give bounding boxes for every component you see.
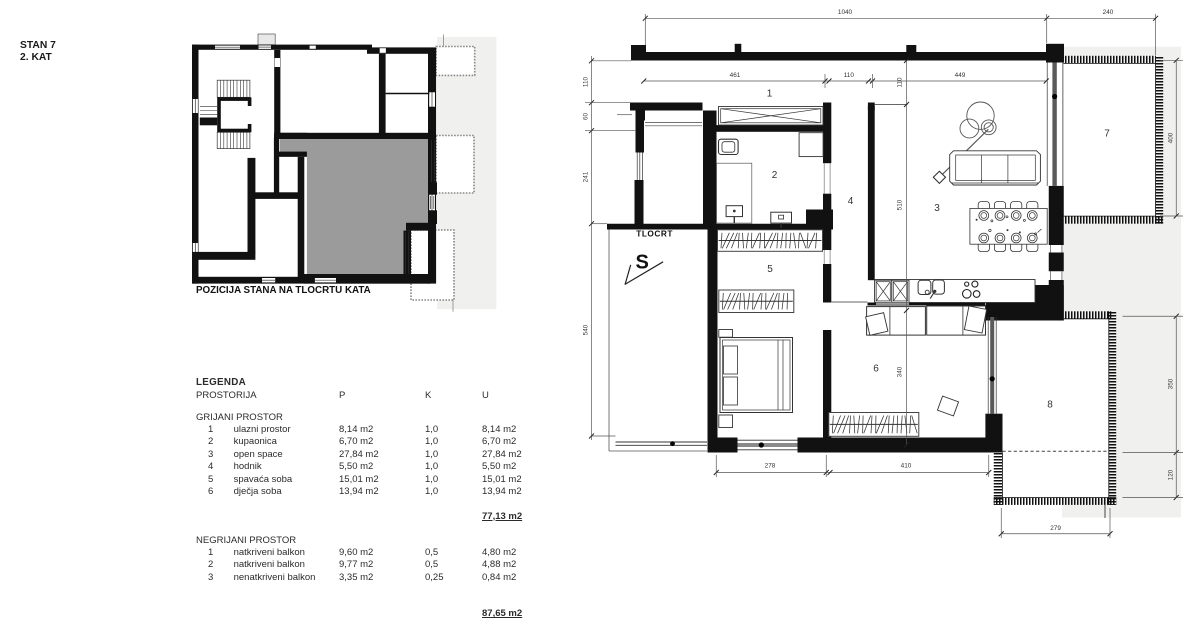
svg-text:241: 241 (583, 171, 590, 182)
svg-text:S: S (636, 252, 649, 274)
svg-text:8: 8 (1047, 400, 1053, 411)
svg-text:449: 449 (955, 72, 966, 79)
svg-text:6: 6 (873, 364, 879, 375)
svg-text:279: 279 (1050, 525, 1061, 532)
svg-text:7: 7 (1104, 129, 1110, 140)
svg-text:278: 278 (765, 463, 776, 470)
svg-text:60: 60 (583, 113, 590, 121)
svg-text:1040: 1040 (838, 9, 853, 16)
svg-text:120: 120 (1167, 469, 1174, 480)
svg-text:340: 340 (897, 366, 904, 377)
svg-text:2: 2 (772, 170, 778, 181)
svg-text:110: 110 (897, 77, 904, 88)
svg-text:410: 410 (901, 463, 912, 470)
svg-text:540: 540 (583, 324, 590, 335)
svg-text:510: 510 (897, 199, 904, 210)
svg-text:1: 1 (767, 89, 773, 100)
svg-text:3: 3 (934, 203, 940, 214)
svg-text:TLOCRT: TLOCRT (636, 228, 673, 238)
svg-text:461: 461 (730, 72, 741, 79)
svg-text:5: 5 (767, 264, 773, 275)
svg-text:4: 4 (848, 196, 854, 207)
svg-text:240: 240 (1103, 9, 1114, 16)
svg-text:110: 110 (583, 76, 590, 87)
svg-text:350: 350 (1167, 378, 1174, 389)
svg-text:400: 400 (1167, 132, 1174, 143)
svg-text:110: 110 (844, 72, 855, 79)
